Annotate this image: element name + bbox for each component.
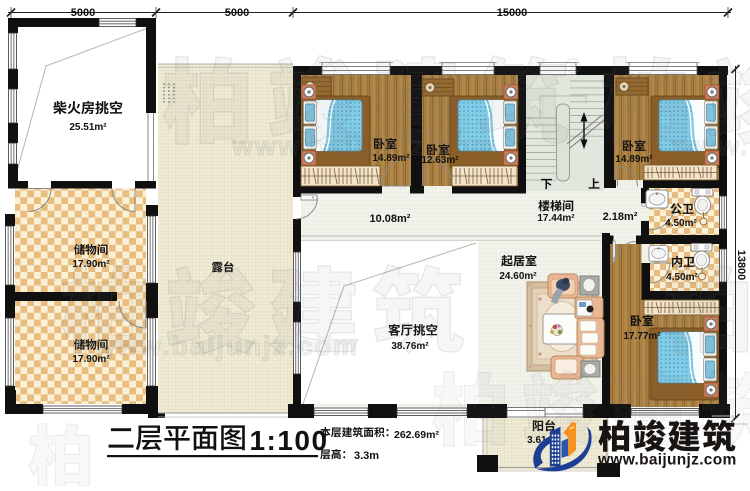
svg-text:www.b: www.b xyxy=(671,131,750,161)
svg-text:14.89m²: 14.89m² xyxy=(615,154,653,165)
svg-text:www.baijunjz.com: www.baijunjz.com xyxy=(93,331,359,361)
svg-text:1:100: 1:100 xyxy=(249,425,328,456)
svg-text:262.69m²: 262.69m² xyxy=(394,429,439,441)
svg-text:13800: 13800 xyxy=(735,250,747,281)
svg-text:17.44m²: 17.44m² xyxy=(537,213,575,224)
svg-text:25.51m²: 25.51m² xyxy=(69,122,107,133)
svg-text:R: R xyxy=(570,62,577,72)
svg-text:5000: 5000 xyxy=(225,7,249,19)
svg-text:15000: 15000 xyxy=(497,7,528,19)
svg-text:5000: 5000 xyxy=(71,7,95,19)
svg-text:3.3m: 3.3m xyxy=(354,450,379,462)
svg-text:www.baijunjz.com: www.baijunjz.com xyxy=(597,452,737,469)
svg-text:24.60m²: 24.60m² xyxy=(499,271,537,282)
svg-text:4.50m²: 4.50m² xyxy=(665,218,697,229)
svg-text:2.18m²: 2.18m² xyxy=(603,211,638,223)
svg-text:17.77m²: 17.77m² xyxy=(623,331,661,342)
svg-text:10.08m²: 10.08m² xyxy=(370,213,411,225)
svg-text:www.baijunjz.com: www.baijunjz.com xyxy=(231,131,497,161)
